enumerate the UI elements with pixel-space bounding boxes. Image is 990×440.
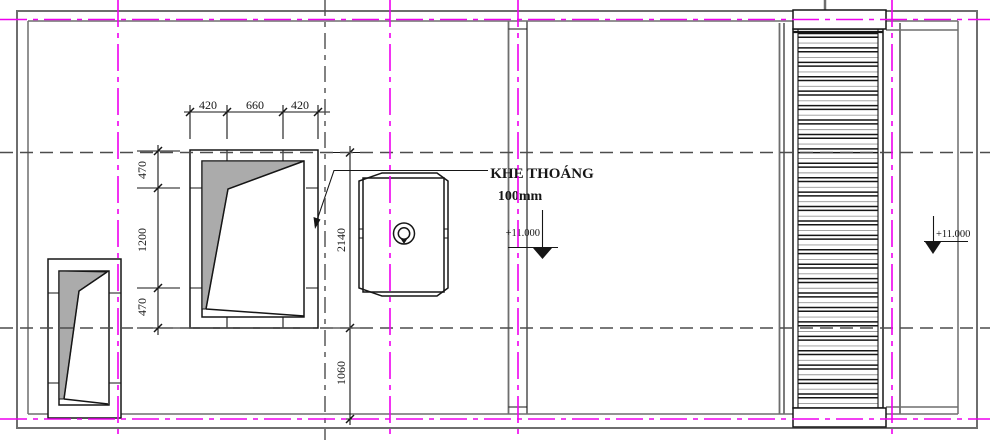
- louver-bottom-band: [793, 408, 886, 427]
- dim-label-left-2: 1200: [135, 228, 149, 252]
- roof-plan-drawing: 420 660 420 470 1200 470 2140 1060 KHE T…: [0, 0, 990, 440]
- skylight-large: [190, 150, 318, 328]
- right-wall-double-line: [780, 23, 785, 414]
- dim-label-top-2: 660: [246, 98, 264, 112]
- drawing-canvas: 420 660 420 470 1200 470 2140 1060 KHE T…: [0, 0, 990, 440]
- elevation-triangle: [925, 242, 941, 254]
- dim-label-right-2: 1060: [334, 361, 348, 385]
- vent-gap-annotation: KHE THOÁNG 100mm: [314, 165, 595, 229]
- roof-louver: [793, 10, 886, 427]
- dim-label-left-1: 470: [135, 161, 149, 179]
- elevation-value-left: +11.000: [506, 228, 540, 239]
- interior-walls: [509, 0, 959, 414]
- right-bay-edge-lines: [886, 30, 958, 407]
- dim-label-top-3: 420: [291, 98, 309, 112]
- annotation-title: KHE THOÁNG: [490, 165, 594, 182]
- skylight-small: [48, 259, 121, 418]
- dim-label-right-1: 2140: [334, 228, 348, 252]
- vent-unit: [359, 173, 448, 296]
- dim-label-top-1: 420: [199, 98, 217, 112]
- dimension-chain-top: 420 660 420: [184, 98, 330, 139]
- dimension-chain-left: 470 1200 470: [135, 145, 180, 335]
- elevation-triangle: [533, 248, 552, 259]
- elevation-marker-left: +11.000: [506, 210, 558, 259]
- elevation-marker-right: +11.000: [924, 216, 970, 254]
- elevation-value-right: +11.000: [936, 229, 970, 240]
- annotation-size: 100mm: [498, 189, 543, 204]
- dim-label-left-3: 470: [135, 298, 149, 316]
- center-wall-ticks: [509, 29, 528, 407]
- dimension-chain-right: 2140 1060: [330, 146, 360, 425]
